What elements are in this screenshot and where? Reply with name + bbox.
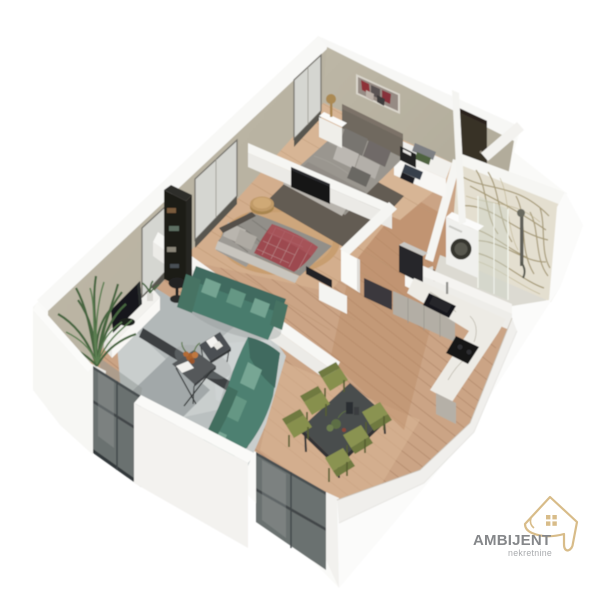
svg-text:nekretnine: nekretnine bbox=[508, 548, 552, 558]
svg-text:AMBIJENT: AMBIJENT bbox=[473, 532, 551, 549]
